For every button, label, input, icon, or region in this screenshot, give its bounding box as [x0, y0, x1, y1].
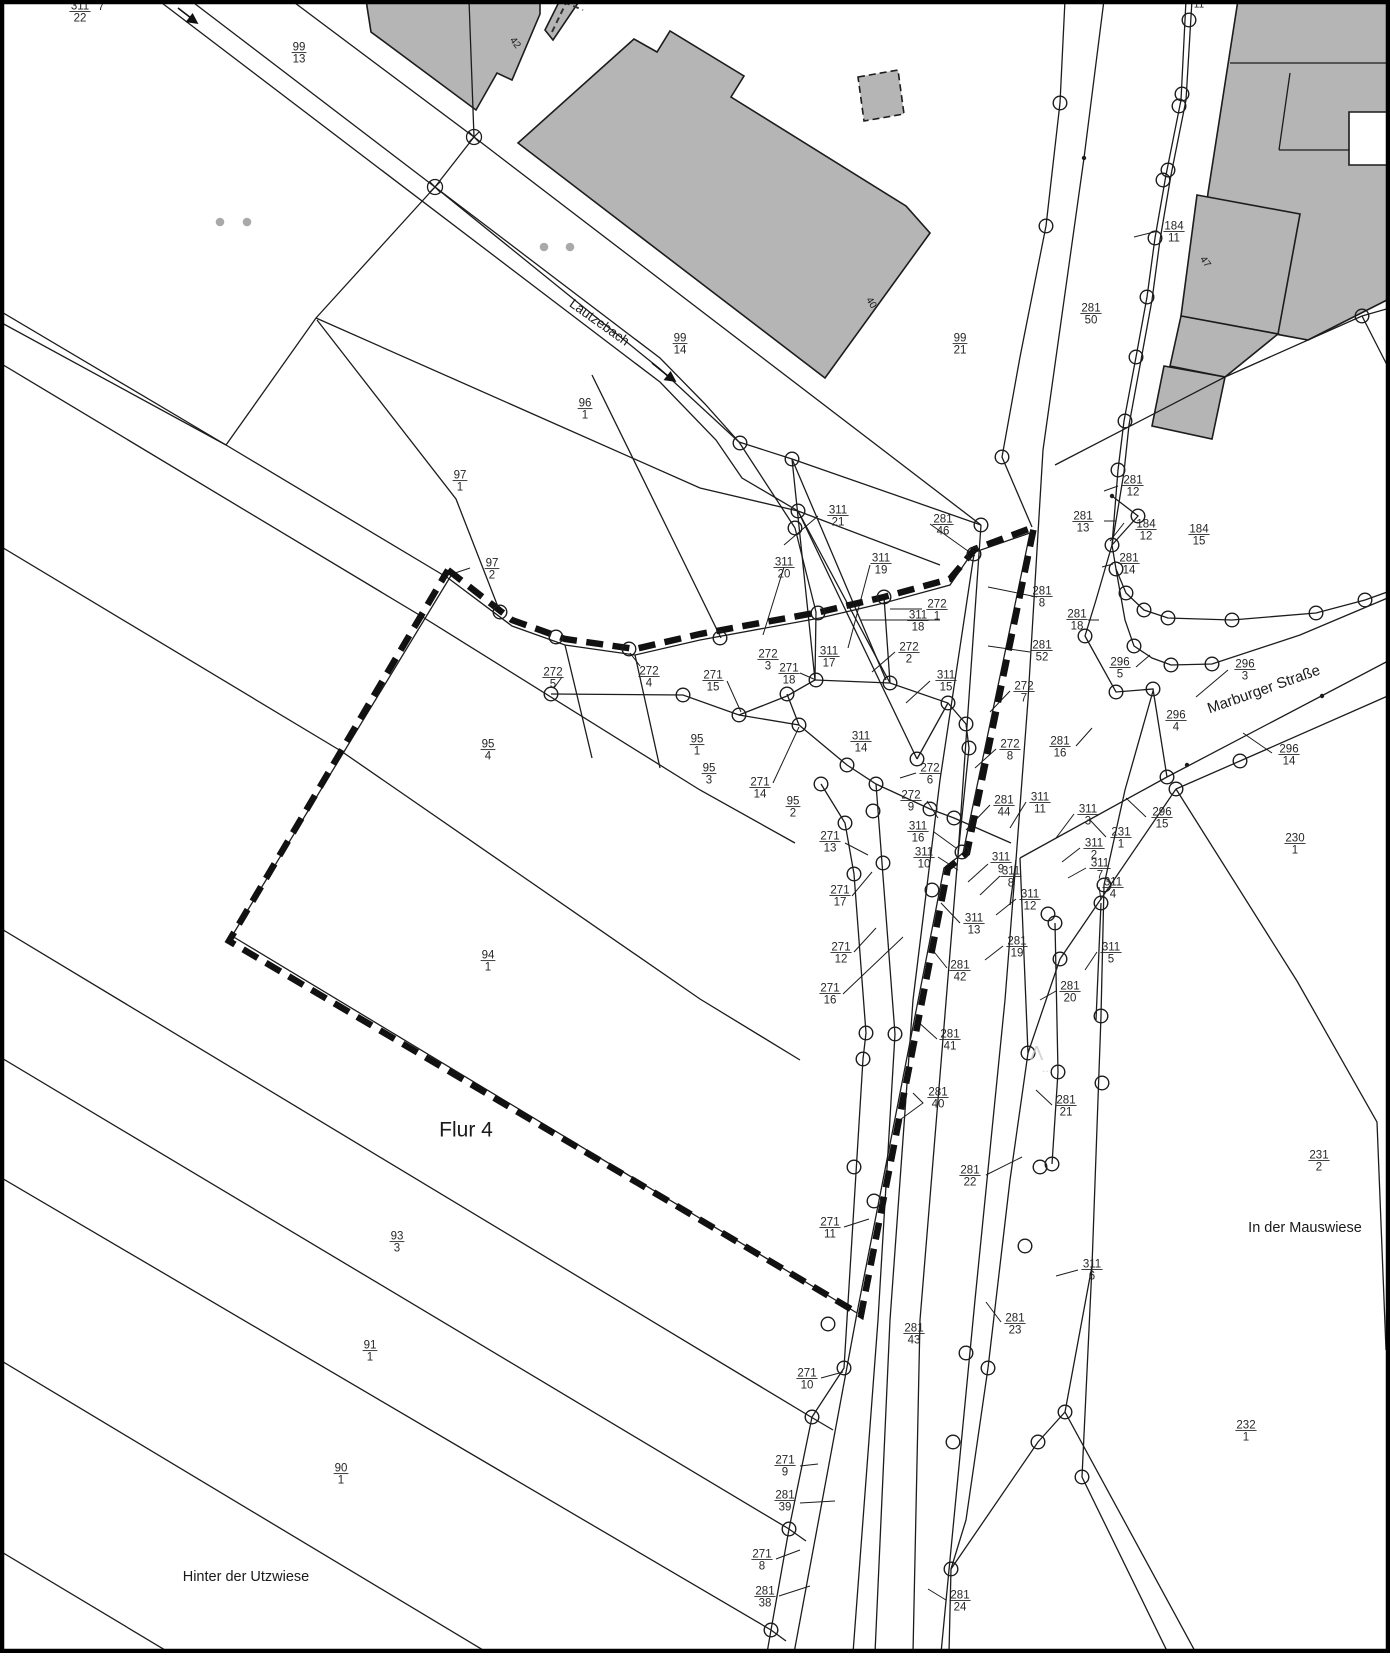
svg-text:296: 296 [1235, 659, 1254, 671]
svg-text:13: 13 [293, 54, 306, 66]
svg-text:281: 281 [1032, 640, 1051, 652]
svg-text:311: 311 [915, 847, 933, 859]
svg-text:15: 15 [1193, 536, 1206, 548]
svg-text:5: 5 [1117, 669, 1123, 681]
svg-text:19: 19 [875, 565, 888, 577]
svg-text:281: 281 [950, 960, 969, 972]
svg-text:13: 13 [824, 843, 837, 855]
svg-text:94: 94 [482, 950, 495, 962]
svg-text:3: 3 [394, 1243, 400, 1255]
svg-text:1: 1 [694, 746, 700, 758]
svg-text:46: 46 [937, 526, 950, 538]
svg-text:2: 2 [790, 808, 796, 820]
svg-text:271: 271 [820, 1217, 839, 1229]
svg-text:99: 99 [293, 42, 306, 54]
svg-text:311: 311 [1091, 858, 1109, 870]
svg-text:281: 281 [994, 795, 1013, 807]
svg-text:311: 311 [937, 670, 955, 682]
svg-text:4: 4 [1110, 889, 1117, 901]
svg-text:1: 1 [485, 962, 491, 974]
svg-text:43: 43 [908, 1335, 921, 1347]
svg-text:271: 271 [820, 831, 839, 843]
svg-text:271: 271 [703, 670, 722, 682]
svg-text:272: 272 [639, 666, 658, 678]
svg-text:281: 281 [1081, 303, 1100, 315]
svg-text:22: 22 [964, 1177, 977, 1189]
svg-text:184: 184 [1164, 221, 1184, 233]
svg-text:281: 281 [1067, 609, 1086, 621]
svg-text:231: 231 [1309, 1150, 1328, 1162]
svg-text:2: 2 [1316, 1162, 1322, 1174]
svg-text:5: 5 [550, 679, 556, 691]
svg-text:2: 2 [489, 570, 495, 582]
svg-text:4: 4 [485, 751, 492, 763]
svg-text:6: 6 [927, 775, 933, 787]
svg-text:12: 12 [1127, 487, 1140, 499]
svg-text:311: 311 [909, 821, 927, 833]
svg-text:23: 23 [1009, 1325, 1022, 1337]
svg-text:2: 2 [906, 654, 912, 666]
svg-text:4: 4 [1173, 722, 1180, 734]
svg-text:272: 272 [899, 642, 918, 654]
svg-text:12: 12 [1140, 531, 1153, 543]
svg-text:281: 281 [928, 1087, 947, 1099]
svg-text:14: 14 [674, 345, 687, 357]
svg-text:184: 184 [1189, 524, 1209, 536]
svg-text:281: 281 [1119, 553, 1138, 565]
svg-text:14: 14 [1283, 756, 1296, 768]
svg-text:13: 13 [968, 925, 981, 937]
svg-text:281: 281 [960, 1165, 979, 1177]
svg-text:4: 4 [646, 678, 653, 690]
svg-text:22: 22 [74, 13, 87, 25]
svg-text:21: 21 [832, 517, 845, 529]
svg-text:3: 3 [765, 661, 771, 673]
svg-text:12: 12 [1024, 901, 1037, 913]
svg-text:1: 1 [457, 482, 463, 494]
svg-text:296: 296 [1152, 807, 1171, 819]
svg-text:1: 1 [934, 611, 940, 623]
svg-text:3: 3 [1085, 816, 1091, 828]
svg-text:272: 272 [901, 790, 920, 802]
svg-text:296: 296 [1279, 744, 1298, 756]
svg-text:311: 311 [872, 553, 890, 565]
svg-text:21: 21 [954, 345, 967, 357]
svg-text:311: 311 [1079, 804, 1097, 816]
svg-text:281: 281 [1056, 1095, 1075, 1107]
svg-text:311: 311 [852, 731, 870, 743]
svg-text:18: 18 [912, 622, 925, 634]
svg-text:14: 14 [754, 789, 767, 801]
svg-text:99: 99 [674, 333, 687, 345]
svg-text:272: 272 [1000, 739, 1019, 751]
svg-text:311: 311 [1083, 1259, 1101, 1271]
svg-text:1: 1 [338, 1475, 344, 1487]
svg-text:13: 13 [1077, 523, 1090, 535]
svg-text:281: 281 [775, 1490, 794, 1502]
svg-text:311: 311 [965, 913, 983, 925]
svg-text:95: 95 [703, 763, 716, 775]
svg-text:7: 7 [1097, 870, 1103, 882]
svg-text:50: 50 [1085, 315, 1098, 327]
svg-text:41: 41 [944, 1041, 957, 1053]
svg-text:14: 14 [1123, 565, 1136, 577]
svg-text:1: 1 [1243, 1432, 1249, 1444]
svg-text:97: 97 [486, 558, 499, 570]
svg-text:311: 311 [1002, 866, 1020, 878]
svg-text:296: 296 [1166, 710, 1185, 722]
svg-text:16: 16 [824, 995, 837, 1007]
svg-text:1: 1 [367, 1352, 373, 1364]
svg-text:95: 95 [787, 796, 800, 808]
svg-text:311: 311 [1031, 792, 1049, 804]
svg-text:272: 272 [543, 667, 562, 679]
svg-text:271: 271 [750, 777, 769, 789]
svg-text:91: 91 [364, 1340, 377, 1352]
svg-text:39: 39 [779, 1502, 792, 1514]
svg-text:97: 97 [454, 470, 467, 482]
svg-text:93: 93 [391, 1231, 404, 1243]
svg-text:42: 42 [954, 972, 967, 984]
svg-text:281: 281 [904, 1323, 923, 1335]
svg-text:15: 15 [1156, 819, 1169, 831]
svg-text:15: 15 [707, 682, 720, 694]
svg-text:16: 16 [912, 833, 925, 845]
svg-text:11: 11 [1168, 233, 1180, 245]
svg-text:95: 95 [691, 734, 704, 746]
svg-text:271: 271 [831, 942, 850, 954]
svg-text:11: 11 [824, 1229, 836, 1241]
svg-text:...: ... [1042, 1061, 1052, 1075]
svg-text:9: 9 [782, 1467, 788, 1479]
svg-text:271: 271 [775, 1455, 794, 1467]
svg-text:20: 20 [778, 569, 791, 581]
svg-text:1: 1 [1118, 839, 1124, 851]
svg-text:7: 7 [1021, 693, 1027, 705]
svg-text:281: 281 [1050, 736, 1069, 748]
svg-text:17: 17 [834, 897, 847, 909]
svg-text:296: 296 [1110, 657, 1129, 669]
svg-text:1: 1 [582, 410, 588, 422]
svg-text:3: 3 [706, 775, 712, 787]
svg-text:17: 17 [823, 658, 836, 670]
svg-text:281: 281 [1007, 936, 1026, 948]
svg-text:18: 18 [1071, 621, 1084, 633]
svg-text:95: 95 [482, 739, 495, 751]
svg-text:311: 311 [1021, 889, 1039, 901]
svg-text:52: 52 [1036, 652, 1049, 664]
svg-text:281: 281 [1032, 586, 1051, 598]
svg-text:311: 311 [1085, 838, 1103, 850]
svg-text:Hinter der Utzwiese: Hinter der Utzwiese [183, 1569, 310, 1585]
svg-text:272: 272 [920, 763, 939, 775]
svg-text:16: 16 [1054, 748, 1067, 760]
svg-text:231: 231 [1111, 827, 1130, 839]
svg-text:6: 6 [1089, 1271, 1095, 1283]
svg-text:311: 311 [1104, 877, 1122, 889]
svg-text:24: 24 [954, 1602, 967, 1614]
svg-text:281: 281 [1073, 511, 1092, 523]
svg-text:311: 311 [775, 557, 793, 569]
svg-text:10: 10 [918, 859, 931, 871]
svg-text:230: 230 [1285, 833, 1304, 845]
svg-text:311: 311 [992, 852, 1010, 864]
svg-text:18: 18 [783, 675, 796, 687]
svg-text:311: 311 [829, 505, 847, 517]
svg-text:8: 8 [1007, 751, 1013, 763]
svg-text:19: 19 [1011, 948, 1024, 960]
svg-text:272: 272 [758, 649, 777, 661]
svg-text:311: 311 [1102, 942, 1120, 954]
svg-text:40: 40 [932, 1099, 945, 1111]
svg-text:3: 3 [1242, 671, 1248, 683]
svg-text:281: 281 [1060, 981, 1079, 993]
svg-text:9: 9 [908, 802, 914, 814]
svg-text:232: 232 [1236, 1420, 1255, 1432]
svg-text:90: 90 [335, 1463, 348, 1475]
svg-text:271: 271 [752, 1549, 771, 1561]
svg-text:271: 271 [820, 983, 839, 995]
svg-text:281: 281 [933, 514, 952, 526]
svg-text:311: 311 [820, 646, 838, 658]
svg-text:281: 281 [950, 1590, 969, 1602]
svg-text:14: 14 [855, 743, 868, 755]
svg-text:20: 20 [1064, 993, 1077, 1005]
svg-text:8: 8 [1039, 598, 1045, 610]
svg-text:184: 184 [1136, 519, 1156, 531]
svg-text:311: 311 [909, 610, 927, 622]
svg-text:5: 5 [1108, 954, 1114, 966]
svg-text:21: 21 [1060, 1107, 1073, 1119]
svg-text:281: 281 [1123, 475, 1142, 487]
svg-text:281: 281 [940, 1029, 959, 1041]
svg-text:In der Mauswiese: In der Mauswiese [1248, 1220, 1362, 1236]
svg-text:12: 12 [835, 954, 848, 966]
svg-text:15: 15 [940, 682, 953, 694]
svg-text:271: 271 [797, 1368, 816, 1380]
svg-text:Flur 4: Flur 4 [439, 1119, 493, 1142]
svg-text:8: 8 [759, 1561, 765, 1573]
svg-text:1: 1 [1292, 845, 1298, 857]
svg-text:44: 44 [998, 807, 1011, 819]
svg-text:281: 281 [755, 1586, 774, 1598]
svg-text:10: 10 [801, 1380, 814, 1392]
svg-text:8: 8 [1008, 878, 1014, 890]
svg-text:281: 281 [1005, 1313, 1024, 1325]
svg-text:38: 38 [759, 1598, 772, 1610]
svg-text:271: 271 [779, 663, 798, 675]
svg-text:11: 11 [1034, 804, 1046, 816]
svg-text:272: 272 [1014, 681, 1033, 693]
svg-text:99: 99 [954, 333, 967, 345]
svg-text:272: 272 [927, 599, 946, 611]
svg-text:96: 96 [579, 398, 592, 410]
svg-text:271: 271 [830, 885, 849, 897]
